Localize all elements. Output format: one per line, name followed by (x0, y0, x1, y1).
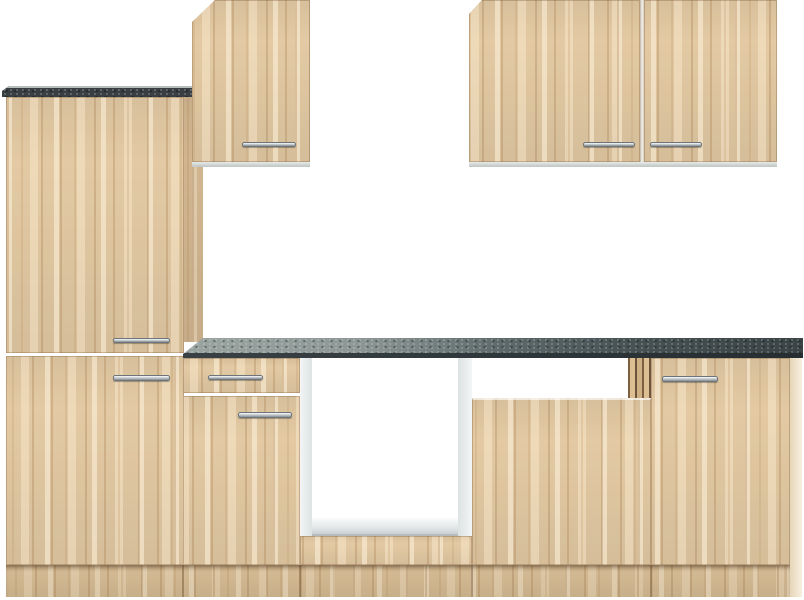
base-cabinet-right-door (651, 358, 790, 565)
oven-niche-left-panel (300, 358, 312, 565)
tall-cabinet-lower-door-handle (113, 375, 170, 381)
drawer-handle (208, 375, 263, 380)
dishwasher-front-panel (472, 398, 651, 565)
wall-cabinet-single-door (192, 0, 310, 162)
kitchen-set-photo (0, 0, 804, 600)
base-cabinet-door (183, 396, 300, 565)
base-cabinet-door-handle (238, 412, 292, 418)
worktop (183, 338, 803, 358)
worktop-front-edge (183, 353, 803, 358)
end-side-panel (790, 358, 802, 597)
base-cabinet-drawer-unit (183, 358, 300, 565)
wall-cabinet-double-door-seam (640, 0, 644, 162)
tall-cabinet-upper-door (6, 97, 184, 353)
oven-niche-floor (312, 518, 458, 536)
tall-cabinet-upper-door-handle (113, 338, 170, 343)
wall-cabinet-single (192, 0, 310, 167)
wall-cabinet-single-bottom-edge (192, 162, 310, 167)
tall-cabinet-worktop-cap (2, 86, 193, 97)
oven-niche (300, 358, 472, 597)
worktop-top-surface (183, 338, 803, 353)
tall-cabinet (0, 0, 210, 600)
wall-cabinet-double-right-door (644, 0, 777, 162)
oven-niche-right-panel (458, 358, 472, 565)
tall-cabinet-lower-door (6, 356, 184, 565)
wall-cabinet-single-door-handle (242, 142, 296, 147)
base-cabinet-right (651, 358, 790, 565)
base-cabinet-right-door-handle (662, 376, 718, 382)
oven-niche-base-panel (300, 536, 472, 565)
wall-cabinet-double-right-handle (650, 142, 702, 147)
dishwasher-niche-side-block (628, 353, 651, 399)
plinth-seam-4 (650, 565, 652, 597)
wall-cabinet-double-left-handle (583, 142, 635, 147)
wall-cabinet-double-left-door (469, 0, 640, 162)
wall-cabinet-double (469, 0, 777, 167)
plinth-seam-1 (182, 565, 184, 597)
wall-cabinet-double-bottom-edge (469, 162, 777, 167)
